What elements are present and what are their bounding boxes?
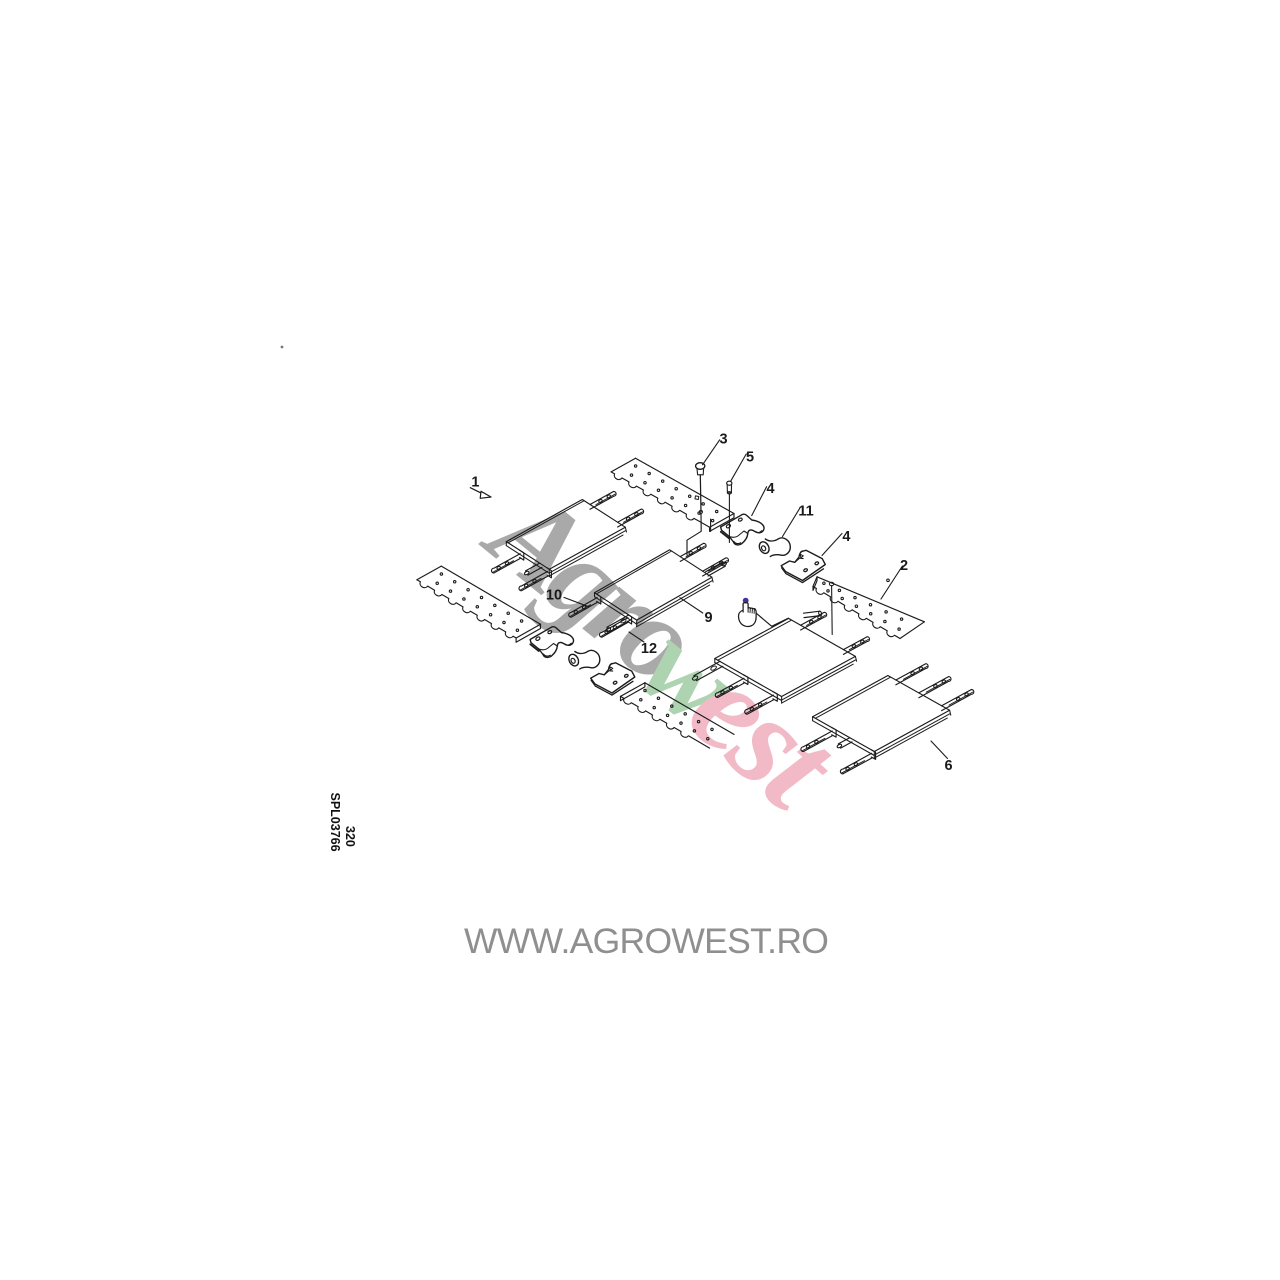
svg-text:1: 1 bbox=[471, 475, 479, 491]
svg-text:4: 4 bbox=[842, 529, 850, 545]
svg-text:320: 320 bbox=[343, 826, 357, 847]
svg-text:3: 3 bbox=[720, 432, 728, 448]
svg-text:10: 10 bbox=[546, 588, 562, 604]
svg-text:12: 12 bbox=[641, 641, 657, 657]
svg-text:SPL03766: SPL03766 bbox=[328, 793, 342, 852]
svg-text:WWW.AGROWEST.RO: WWW.AGROWEST.RO bbox=[464, 921, 828, 961]
svg-text:4: 4 bbox=[766, 481, 774, 497]
svg-text:9: 9 bbox=[704, 610, 712, 626]
svg-text:2: 2 bbox=[900, 558, 908, 574]
svg-text:11: 11 bbox=[798, 504, 813, 520]
svg-text:6: 6 bbox=[944, 758, 952, 774]
svg-text:5: 5 bbox=[746, 450, 754, 466]
